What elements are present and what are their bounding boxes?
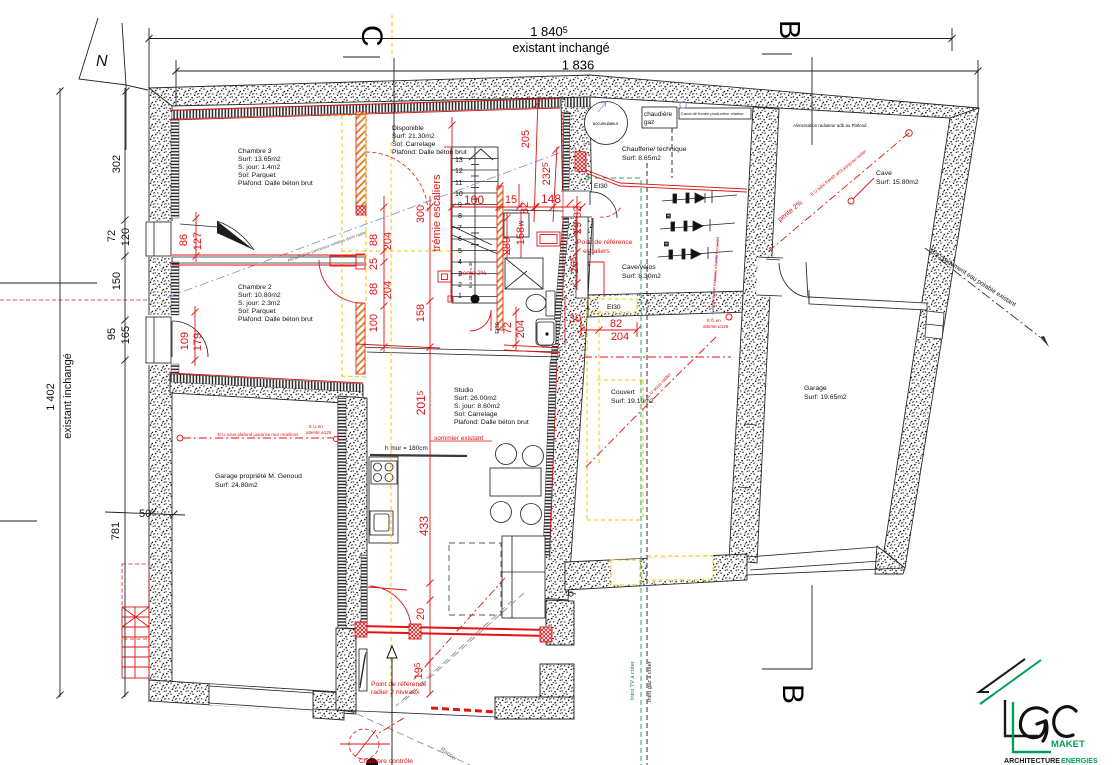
svg-text:Sol: Carrelage: Sol: Carrelage — [392, 141, 436, 148]
svg-text:attente ø125: attente ø125 — [306, 430, 332, 435]
svg-text:Surf: 19.10m2: Surf: 19.10m2 — [611, 398, 654, 405]
svg-text:9: 9 — [458, 202, 462, 209]
svg-text:127: 127 — [192, 232, 204, 250]
svg-text:Surf: 8.30m2: Surf: 8.30m2 — [622, 273, 661, 280]
svg-text:Cave: Cave — [876, 170, 892, 177]
svg-text:Chambre 2: Chambre 2 — [238, 284, 272, 291]
svg-text:EI30: EI30 — [495, 322, 501, 334]
svg-text:12: 12 — [455, 168, 463, 175]
svg-text:trémie escaliers: trémie escaliers — [431, 174, 443, 252]
svg-text:1 8405: 1 8405 — [530, 24, 568, 39]
svg-text:1 402: 1 402 — [45, 383, 57, 411]
svg-text:Surf: 21.30m2: Surf: 21.30m2 — [392, 133, 435, 140]
svg-text:13: 13 — [455, 157, 463, 164]
svg-text:1: 1 — [458, 293, 462, 300]
svg-text:S. jour: 2.3m2: S. jour: 2.3m2 — [238, 300, 281, 307]
svg-text:ENERGIES: ENERGIES — [1061, 757, 1098, 765]
svg-text:2: 2 — [458, 282, 462, 289]
svg-text:Surf: 19.65m2: Surf: 19.65m2 — [804, 394, 847, 401]
svg-text:289: 289 — [501, 237, 513, 255]
svg-text:Intro TV à créer: Intro TV à créer — [630, 661, 636, 700]
svg-text:Alimentation radiateur adb au: Alimentation radiateur adb au Plafond — [793, 123, 867, 128]
svg-text:B: B — [776, 684, 809, 704]
svg-text:Surf: 8.65m2: Surf: 8.65m2 — [622, 155, 661, 162]
svg-text:Garage propriété M. Genoud: Garage propriété M. Genoud — [215, 473, 302, 480]
svg-text:120: 120 — [120, 228, 132, 246]
svg-text:h mur = 180cm: h mur = 180cm — [385, 445, 428, 452]
svg-text:EI30: EI30 — [594, 183, 608, 190]
svg-text:Sol: Parquet: Sol: Parquet — [238, 172, 276, 179]
svg-text:Garage: Garage — [804, 385, 827, 392]
svg-text:82: 82 — [572, 206, 584, 218]
svg-text:25: 25 — [368, 258, 380, 270]
svg-text:11: 11 — [455, 180, 462, 187]
svg-text:204: 204 — [611, 331, 629, 343]
svg-text:150: 150 — [111, 272, 123, 290]
svg-text:100: 100 — [464, 193, 484, 207]
svg-text:escaliers: escaliers — [583, 248, 610, 255]
svg-text:6: 6 — [458, 236, 462, 243]
svg-text:Chaufferie/ technique: Chaufferie/ technique — [622, 146, 687, 153]
svg-text:165: 165 — [120, 326, 132, 344]
svg-text:5: 5 — [458, 248, 462, 255]
svg-text:gaz: gaz — [644, 119, 654, 126]
svg-text:50: 50 — [139, 508, 151, 520]
svg-text:781: 781 — [110, 522, 122, 540]
svg-text:86: 86 — [178, 234, 190, 246]
svg-text:88: 88 — [368, 234, 380, 246]
svg-text:109: 109 — [179, 332, 191, 350]
svg-text:EI30: EI30 — [607, 304, 621, 311]
svg-text:MAKET: MAKET — [1051, 739, 1085, 750]
svg-text:existant inchangé: existant inchangé — [512, 41, 609, 55]
svg-text:158: 158 — [515, 227, 527, 245]
svg-text:20: 20 — [415, 608, 427, 620]
svg-text:Studio: Studio — [454, 387, 473, 394]
svg-text:Surf: 24.80m2: Surf: 24.80m2 — [215, 482, 258, 489]
svg-text:29: 29 — [572, 222, 584, 234]
svg-text:Point de référence: Point de référence — [577, 239, 633, 246]
svg-text:EI: EI — [666, 214, 671, 220]
svg-text:7: 7 — [458, 225, 462, 232]
svg-text:N: N — [96, 53, 108, 70]
svg-text:100: 100 — [368, 314, 380, 332]
svg-text:148: 148 — [541, 192, 561, 206]
svg-text:10: 10 — [455, 191, 463, 198]
svg-text:Cave/vélos: Cave/vélos — [622, 264, 656, 271]
svg-text:Surf: 15.80m2: Surf: 15.80m2 — [876, 179, 919, 186]
svg-text:158: 158 — [415, 304, 427, 322]
svg-text:Plafond: Dalle béton brut: Plafond: Dalle béton brut — [392, 149, 467, 156]
svg-text:accumulateur: accumulateur — [593, 121, 619, 126]
svg-text:radier 2 niveaux: radier 2 niveaux — [371, 689, 420, 696]
svg-text:Canal de fumée producteur chal: Canal de fumée producteur chaleur — [681, 111, 744, 116]
svg-text:4: 4 — [458, 259, 462, 266]
svg-text:204: 204 — [515, 320, 527, 338]
svg-text:8: 8 — [458, 213, 462, 220]
svg-text:S. jour: 8.60m2: S. jour: 8.60m2 — [454, 403, 500, 410]
svg-text:pente 2%: pente 2% — [459, 270, 487, 277]
svg-text:Disponible: Disponible — [392, 125, 424, 132]
svg-text:Chambre contrôle: Chambre contrôle — [359, 758, 413, 765]
svg-text:15: 15 — [505, 194, 517, 206]
svg-text:Intro gaz à créer: Intro gaz à créer — [647, 661, 653, 702]
svg-text:E.U sous plafond jusqu'au mur: E.U sous plafond jusqu'au mur moellons — [218, 432, 299, 437]
svg-text:204: 204 — [382, 281, 394, 299]
svg-text:Point de référence: Point de référence — [371, 681, 427, 688]
svg-text:72: 72 — [502, 322, 514, 334]
svg-text:433: 433 — [417, 516, 431, 536]
svg-text:88: 88 — [368, 283, 380, 295]
svg-text:C: C — [355, 25, 388, 47]
svg-text:Plafond: Dalle béton brut: Plafond: Dalle béton brut — [238, 180, 313, 187]
svg-text:Surf: 13.65m2: Surf: 13.65m2 — [238, 156, 281, 163]
svg-text:chaudière: chaudière — [644, 111, 673, 118]
svg-text:ARCHITECTURE: ARCHITECTURE — [1004, 757, 1060, 765]
svg-text:205: 205 — [520, 130, 532, 148]
svg-text:Sol: Parquet: Sol: Parquet — [238, 308, 276, 315]
svg-text:EI: EI — [664, 242, 669, 248]
svg-text:E.U en: E.U en — [707, 318, 721, 323]
svg-text:Sol: Carrelage: Sol: Carrelage — [454, 411, 498, 418]
svg-text:179: 179 — [192, 333, 204, 351]
svg-text:E.U en: E.U en — [309, 424, 323, 429]
svg-text:1 836: 1 836 — [562, 58, 595, 73]
svg-text:Chambre 3: Chambre 3 — [238, 148, 272, 155]
svg-text:72: 72 — [106, 230, 118, 242]
svg-text:30: 30 — [569, 313, 581, 325]
svg-text:Surf: 26.00m2: Surf: 26.00m2 — [454, 395, 497, 402]
svg-text:existant inchangé: existant inchangé — [62, 353, 74, 439]
svg-text:82: 82 — [610, 318, 622, 330]
svg-text:300: 300 — [415, 205, 427, 223]
svg-text:95: 95 — [106, 328, 118, 340]
svg-text:Plafond: Dalle béton brut: Plafond: Dalle béton brut — [238, 316, 313, 323]
svg-text:204: 204 — [382, 232, 394, 250]
svg-text:Couvert: Couvert — [611, 389, 635, 396]
svg-text:M: M — [517, 221, 523, 226]
svg-text:attente ø125: attente ø125 — [703, 324, 729, 329]
svg-text:82: 82 — [519, 202, 531, 214]
svg-text:B: B — [773, 20, 805, 39]
svg-text:Plafond: Dalle béton brut: Plafond: Dalle béton brut — [454, 419, 529, 426]
svg-text:S. jour: 1.4m2: S. jour: 1.4m2 — [238, 164, 281, 171]
svg-text:Surf: 10.80m2: Surf: 10.80m2 — [238, 292, 281, 299]
svg-text:302: 302 — [111, 155, 123, 173]
